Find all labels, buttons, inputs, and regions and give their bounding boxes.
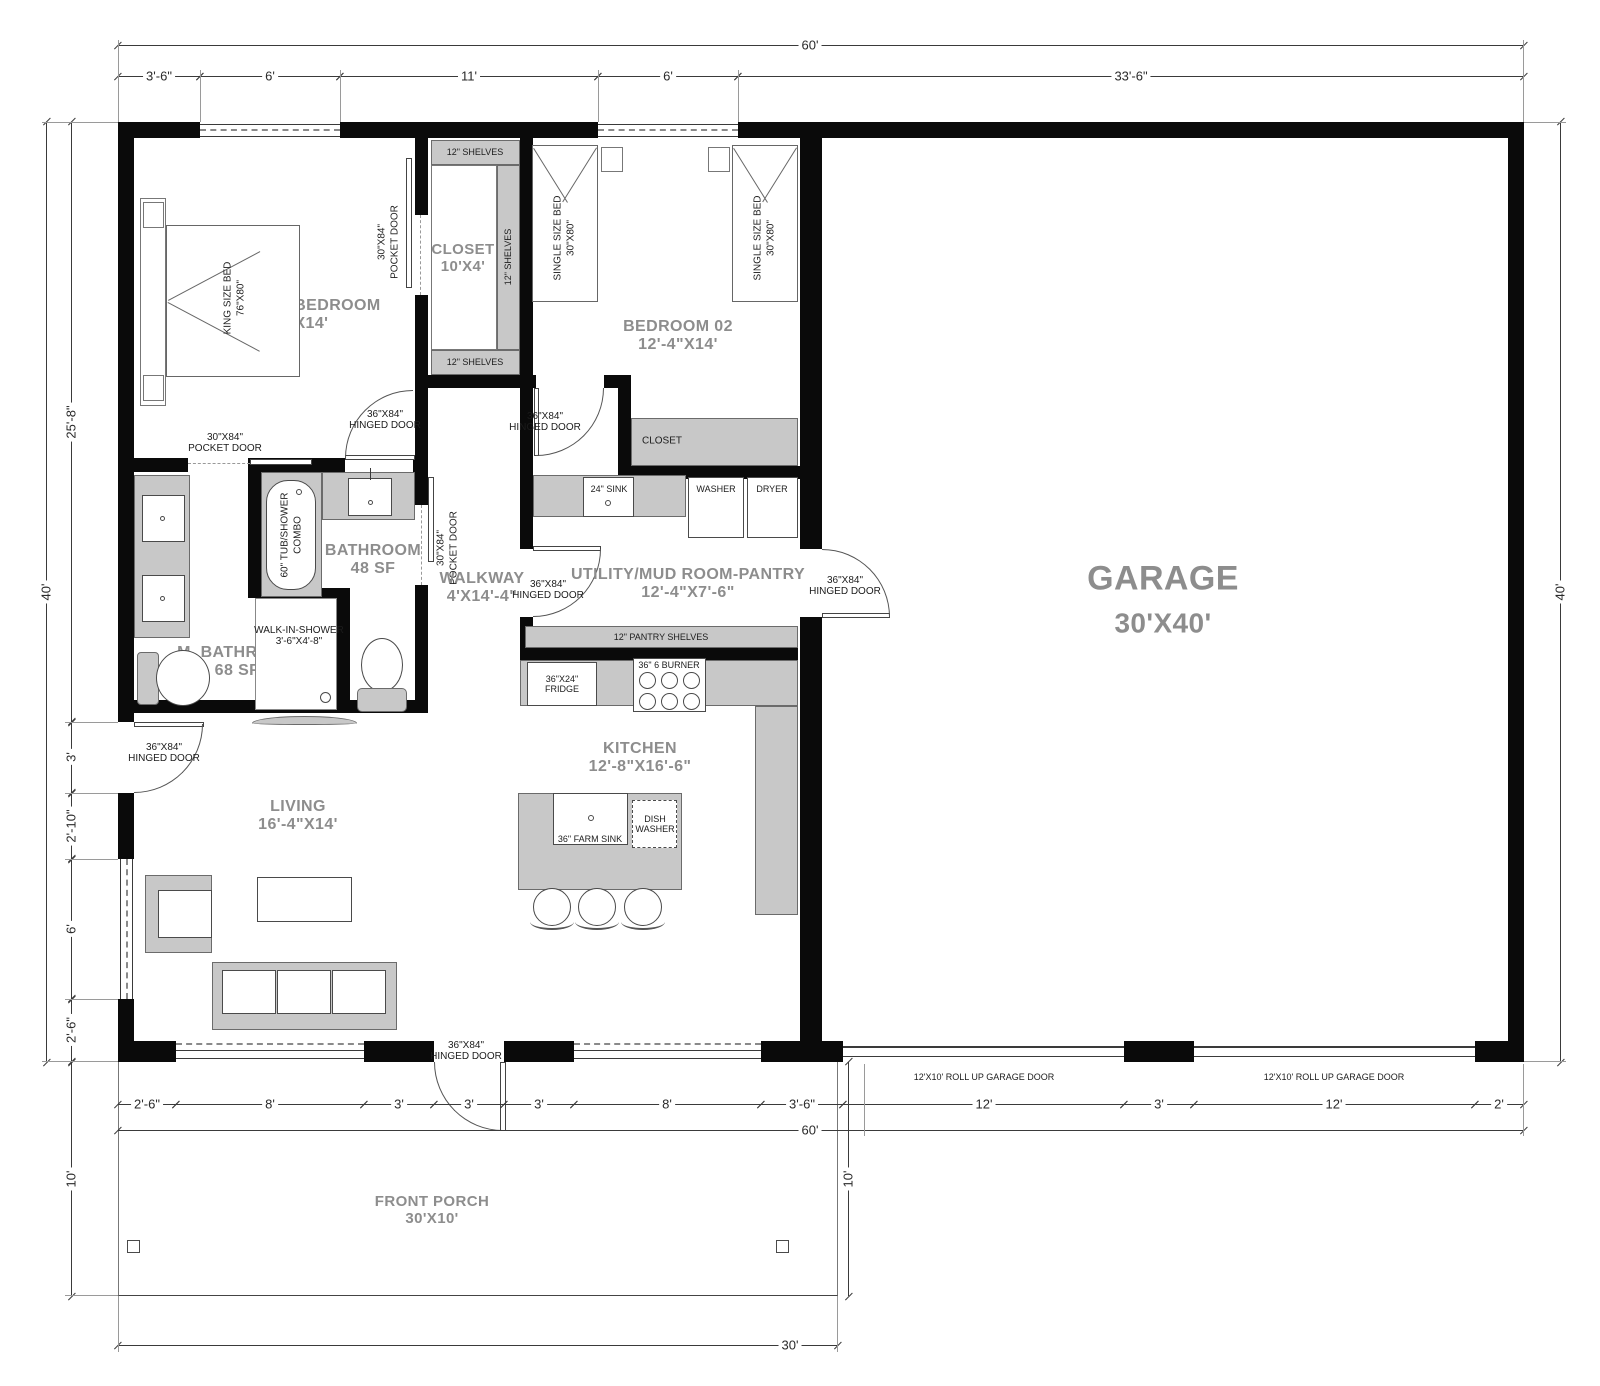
wall-top bbox=[340, 122, 598, 138]
single-bed-1-label-1: SINGLE SIZE BED bbox=[553, 195, 564, 280]
utility-name: UTILITY/MUD ROOM-PANTRY bbox=[571, 566, 805, 583]
tub bbox=[266, 480, 316, 590]
single-bed-2-label-1: SINGLE SIZE BED bbox=[753, 195, 764, 280]
ext-line bbox=[65, 722, 118, 723]
kitchen-counter-right bbox=[755, 706, 798, 915]
ext-line bbox=[1523, 40, 1524, 122]
ext-line bbox=[598, 70, 599, 122]
ext-line bbox=[42, 122, 118, 123]
porch-size: 30'X10' bbox=[405, 1210, 458, 1227]
ext-line bbox=[1523, 1064, 1524, 1136]
utility-sink bbox=[583, 477, 634, 517]
entry-door-size: 36"X84" bbox=[146, 742, 182, 753]
pocket-door-bath-label-1: 30"X84" bbox=[436, 530, 447, 566]
pocket-door-bath-panel bbox=[428, 477, 434, 562]
wall-walkway-left bbox=[415, 585, 428, 712]
pocket-door-master-panel bbox=[406, 158, 412, 288]
bath-toilet-bowl bbox=[361, 638, 403, 692]
utility-garage-door-label: 36"X84" HINGED DOOR bbox=[809, 575, 881, 597]
ext-line bbox=[1524, 1061, 1566, 1062]
porch-name: FRONT PORCH bbox=[375, 1193, 489, 1210]
pocket-door-mbath-size: 30"X84" bbox=[207, 432, 243, 443]
bedroom02-size: 12'-4"X14' bbox=[638, 336, 718, 353]
living-size: 16'-4"X14' bbox=[258, 816, 338, 833]
farm-sink-label: 36" FARM SINK bbox=[558, 834, 622, 844]
wall-top bbox=[738, 122, 1524, 138]
shower-drain bbox=[320, 692, 331, 703]
ext-line bbox=[864, 1064, 865, 1136]
ext-line bbox=[65, 859, 118, 860]
dishwasher-l1: DISH bbox=[644, 814, 666, 824]
bath-sink-drain bbox=[368, 500, 373, 505]
window-bedroom02 bbox=[598, 124, 738, 125]
wall-bottom bbox=[1124, 1041, 1194, 1062]
ext-line bbox=[1524, 122, 1566, 123]
ext-line bbox=[837, 1296, 838, 1352]
garage-door-1 bbox=[843, 1046, 1124, 1048]
room-label-bedroom02: BEDROOM 02 12'-4"X14' bbox=[623, 318, 733, 354]
burner bbox=[661, 693, 678, 710]
window-living-bottom-dash bbox=[176, 1043, 364, 1045]
washer-label: WASHER bbox=[696, 484, 735, 494]
bathroom-size: 48 SF bbox=[351, 560, 396, 577]
window-kitchen-bottom bbox=[574, 1058, 761, 1059]
sofa-cushion bbox=[332, 970, 386, 1014]
burner bbox=[639, 693, 656, 710]
dim-right-total-label: 40' bbox=[1553, 581, 1568, 604]
room-label-bathroom: BATHROOM 48 SF bbox=[325, 542, 421, 578]
dishwasher-label: DISH WASHER bbox=[635, 814, 674, 834]
room-label-living: LIVING 16'-4"X14' bbox=[258, 798, 338, 834]
single-bed-2-label-2: 30"X80" bbox=[766, 220, 777, 256]
ext-line bbox=[65, 999, 118, 1000]
garage-door-2 bbox=[1194, 1056, 1475, 1057]
bedroom02-door-label: 36"X84" HINGED DOOR bbox=[509, 411, 581, 433]
dim-top-seg-label: 6' bbox=[660, 69, 676, 84]
garage-door-2 bbox=[1194, 1046, 1475, 1048]
wall-walkway-left bbox=[415, 472, 428, 505]
sofa-cushion bbox=[222, 970, 276, 1014]
room-label-porch: FRONT PORCH 30'X10' bbox=[375, 1193, 489, 1227]
porch-outline bbox=[118, 1062, 838, 1296]
window-master bbox=[200, 136, 340, 137]
wall-garage-divider bbox=[800, 138, 822, 549]
wall-bottom bbox=[761, 1041, 843, 1062]
window-master bbox=[200, 124, 340, 125]
wall-bed02-closet-stub bbox=[618, 375, 631, 479]
burner bbox=[683, 672, 700, 689]
entry-door-label: 36"X84" HINGED DOOR bbox=[128, 742, 200, 764]
ext-line bbox=[65, 793, 118, 794]
armchair-cushion bbox=[158, 890, 212, 938]
wall-shower-right bbox=[337, 588, 350, 713]
pocket-door-mbath-type: POCKET DOOR bbox=[188, 443, 262, 454]
pocket-door-mbath-label: 30"X84" POCKET DOOR bbox=[188, 432, 262, 454]
ext-line bbox=[200, 70, 201, 122]
dim-bottom-seg-label: 2' bbox=[1491, 1097, 1507, 1112]
stool-back bbox=[621, 914, 665, 930]
dim-bottom-seg-label: 3' bbox=[531, 1097, 547, 1112]
ext-line bbox=[340, 70, 341, 122]
closet-shelf-right-label: 12" SHELVES bbox=[503, 229, 513, 286]
garage-size: 30'X40' bbox=[1114, 607, 1211, 638]
porch-post bbox=[776, 1240, 789, 1253]
garage-name: GARAGE bbox=[1087, 560, 1239, 598]
dim-porch-left-label: 10' bbox=[64, 1168, 79, 1191]
pocket-door-master-dash bbox=[420, 215, 421, 295]
dim-bottom-seg-label: 2'-6" bbox=[131, 1097, 163, 1112]
pantry-shelves-label: 12" PANTRY SHELVES bbox=[614, 632, 709, 642]
dim-porch-right-label: 10' bbox=[841, 1168, 856, 1191]
bathroom-name: BATHROOM bbox=[325, 542, 421, 559]
stool-back bbox=[530, 914, 574, 930]
dim-left-seg-label: 6' bbox=[64, 921, 79, 937]
ext-line bbox=[118, 1296, 119, 1352]
pocket-door-master-label-2: POCKET DOOR bbox=[390, 205, 401, 279]
wall-right bbox=[1508, 122, 1524, 1062]
burner bbox=[683, 693, 700, 710]
dim-bottom-seg-label: 3'-6" bbox=[786, 1097, 818, 1112]
utility-sink-label: 24" SINK bbox=[591, 484, 628, 494]
mbathroom-size: 68 SF bbox=[215, 662, 260, 679]
window-living-bottom bbox=[176, 1050, 364, 1051]
wall-master-right bbox=[415, 138, 428, 215]
dim-porch-width-label: 30' bbox=[779, 1338, 802, 1353]
kitchen-size: 12'-8"X16'-6" bbox=[589, 758, 692, 775]
wall-left bbox=[118, 122, 134, 722]
single-bed-2-pillow bbox=[708, 147, 730, 172]
porch-post bbox=[127, 1240, 140, 1253]
bath-toilet-tank bbox=[357, 688, 407, 712]
dim-bottom-seg-label: 3' bbox=[391, 1097, 407, 1112]
dim-bottom-seg-label: 8' bbox=[659, 1097, 675, 1112]
garage-door-1-label: 12'X10' ROLL UP GARAGE DOOR bbox=[914, 1072, 1055, 1082]
wall-hall bbox=[134, 458, 188, 472]
bath-sink bbox=[348, 478, 392, 516]
ext-line bbox=[738, 70, 739, 122]
coffee-table bbox=[257, 877, 352, 922]
entry-door-type: HINGED DOOR bbox=[128, 753, 200, 764]
sofa-cushion bbox=[277, 970, 331, 1014]
utility-size: 12'-4"X7'-6" bbox=[641, 584, 734, 601]
single-bed-1-pillow bbox=[601, 147, 623, 172]
living-name: LIVING bbox=[270, 798, 326, 815]
mbath-sink-2-drain bbox=[160, 596, 165, 601]
window-living-bottom bbox=[176, 1058, 364, 1059]
kitchen-name: KITCHEN bbox=[603, 740, 677, 757]
tub-label-1: 60" TUB/SHOWER bbox=[280, 492, 291, 577]
closet-size: 10'X4' bbox=[441, 258, 486, 275]
dim-left-seg-label: 25'-8" bbox=[64, 402, 79, 441]
single-bed-1-label-2: 30"X80" bbox=[566, 220, 577, 256]
king-bed-label-1: KING SIZE BED bbox=[223, 262, 234, 335]
fridge-name: FRIDGE bbox=[545, 684, 579, 694]
bedroom02-door-type: HINGED DOOR bbox=[509, 422, 581, 433]
dim-porch-width bbox=[118, 1345, 838, 1346]
king-bed-pillow bbox=[143, 375, 164, 401]
wall-bottom bbox=[118, 1041, 176, 1062]
window-living-left bbox=[132, 859, 133, 999]
mbath-toilet-bowl bbox=[156, 650, 210, 706]
king-bed-pillow bbox=[143, 202, 164, 228]
dim-left-seg-label: 2'-10" bbox=[64, 806, 79, 845]
king-bed-label-2: 76"X80" bbox=[236, 280, 247, 316]
ext-line bbox=[42, 1061, 118, 1062]
burner bbox=[639, 672, 656, 689]
bedroom02-door-size: 36"X84" bbox=[527, 411, 563, 422]
dim-bottom-seg-label: 3' bbox=[461, 1097, 477, 1112]
master-door-type: HINGED DOOR bbox=[349, 420, 421, 431]
utility-garage-door-size: 36"X84" bbox=[827, 575, 863, 586]
master-door-size: 36"X84" bbox=[367, 409, 403, 420]
stove-label: 36" 6 BURNER bbox=[638, 660, 699, 670]
shower-label: WALK-IN-SHOWER 3'-6"X4'-8" bbox=[254, 625, 344, 647]
room-label-utility: UTILITY/MUD ROOM-PANTRY 12'-4"X7'-6" bbox=[571, 566, 805, 602]
wall-bottom bbox=[504, 1041, 574, 1062]
dim-bottom-seg-label: 8' bbox=[262, 1097, 278, 1112]
wall-left bbox=[118, 793, 134, 859]
dim-top-total-label: 60' bbox=[799, 38, 822, 53]
bath-faucet bbox=[370, 468, 371, 480]
shower-name: WALK-IN-SHOWER bbox=[254, 625, 344, 636]
porch-door-size: 36"X84" bbox=[448, 1040, 484, 1051]
utility-sink-drain bbox=[605, 500, 611, 506]
window-bedroom02-dash bbox=[598, 129, 738, 131]
dim-bottom-seg-label: 12' bbox=[1323, 1097, 1346, 1112]
tub-label-2: COMBO bbox=[293, 516, 304, 554]
burner bbox=[661, 672, 678, 689]
porch-door-type: HINGED DOOR bbox=[430, 1051, 502, 1062]
dim-top-seg-label: 6' bbox=[262, 69, 278, 84]
window-bedroom02 bbox=[598, 136, 738, 137]
dim-bottom-seg-label: 3' bbox=[1151, 1097, 1167, 1112]
fridge-label: 36"X24" FRIDGE bbox=[545, 674, 579, 694]
tub-drain bbox=[296, 489, 302, 495]
dim-left-total-label: 40' bbox=[39, 581, 54, 604]
dim-top-seg-label: 11' bbox=[458, 69, 480, 84]
wall-closet-bottom bbox=[415, 375, 536, 388]
window-kitchen-bottom-dash bbox=[574, 1043, 761, 1045]
closet-shelf-top-label: 12" SHELVES bbox=[447, 147, 504, 157]
walkway-utility-door-size: 36"X84" bbox=[530, 579, 566, 590]
walkway-size: 4'X14'-4" bbox=[447, 588, 517, 605]
ext-line bbox=[118, 40, 119, 122]
pocket-door-mbath-dash bbox=[188, 463, 250, 464]
porch-door-label: 36"X84" HINGED DOOR bbox=[430, 1040, 502, 1062]
dishwasher-l2: WASHER bbox=[635, 824, 674, 834]
window-living-left bbox=[120, 859, 121, 999]
stool-back bbox=[575, 914, 619, 930]
dryer-label: DRYER bbox=[756, 484, 787, 494]
mbath-sink-1-drain bbox=[160, 516, 165, 521]
fridge-size: 36"X24" bbox=[546, 674, 578, 684]
wall-bottom bbox=[1475, 1041, 1524, 1062]
dim-left-seg-label: 2'-6" bbox=[64, 1014, 79, 1046]
wall-bottom bbox=[364, 1041, 434, 1062]
room-label-garage: GARAGE 30'X40' bbox=[1087, 558, 1239, 643]
garage-door-2-label: 12'X10' ROLL UP GARAGE DOOR bbox=[1264, 1072, 1405, 1082]
floor-plan: MASTER BEDROOM 12'X14' KING SIZE BED 76"… bbox=[0, 0, 1600, 1386]
console-table bbox=[252, 716, 357, 725]
wall-garage-divider bbox=[800, 617, 822, 1041]
window-living-left-dash bbox=[126, 859, 128, 999]
ext-line bbox=[65, 1295, 118, 1296]
dim-left-seg-label: 3' bbox=[64, 749, 79, 765]
wall-tub-divider bbox=[248, 458, 261, 597]
dim-bottom-seg-label: 12' bbox=[973, 1097, 996, 1112]
master-door-label: 36"X84" HINGED DOOR bbox=[349, 409, 421, 431]
pocket-door-master-label-1: 30"X84" bbox=[377, 224, 388, 260]
room-label-closet: CLOSET 10'X4' bbox=[431, 241, 494, 275]
bedroom02-closet-label: CLOSET bbox=[642, 436, 682, 447]
window-kitchen-bottom bbox=[574, 1050, 761, 1051]
dim-top-seg-label: 33'-6" bbox=[1111, 69, 1150, 84]
dim-top-seg-label: 3'-6" bbox=[143, 69, 175, 84]
pocket-door-mbath-panel bbox=[250, 459, 312, 465]
window-master-dash bbox=[200, 129, 340, 131]
farm-sink-drain bbox=[588, 815, 594, 821]
shower-size: 3'-6"X4'-8" bbox=[276, 636, 323, 647]
pocket-door-bath-dash bbox=[421, 505, 422, 585]
utility-garage-door-type: HINGED DOOR bbox=[809, 586, 881, 597]
room-label-kitchen: KITCHEN 12'-8"X16'-6" bbox=[589, 740, 692, 776]
bedroom02-name: BEDROOM 02 bbox=[623, 318, 733, 335]
wall-hall bbox=[413, 458, 428, 472]
closet-shelf-bottom-label: 12" SHELVES bbox=[447, 357, 504, 367]
garage-door-1 bbox=[843, 1056, 1124, 1057]
closet-name: CLOSET bbox=[431, 241, 494, 258]
dim-bottom-total-label: 60' bbox=[799, 1123, 822, 1138]
